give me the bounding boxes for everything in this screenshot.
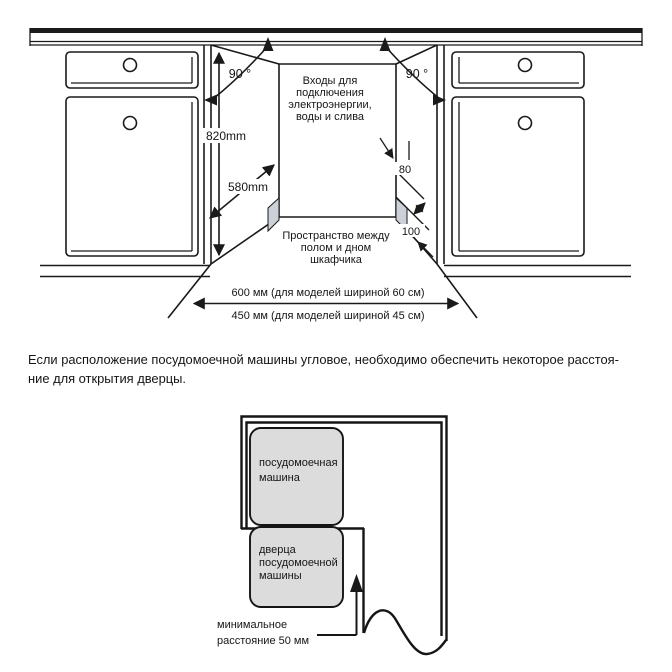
left-drawer-knob-icon (124, 59, 137, 72)
label-angle-left: 90 ° (229, 67, 251, 81)
svg-text:электроэнергии,: электроэнергии, (288, 99, 371, 111)
note-line-1: Если расположение посудомоечной машины у… (28, 350, 664, 369)
svg-text:подключения: подключения (296, 87, 364, 99)
svg-text:полом и дном: полом и дном (301, 242, 372, 254)
left-plinth-panel (268, 198, 279, 231)
gap-80-arrow-icon (414, 203, 425, 214)
left-cabinet (40, 45, 211, 277)
svg-text:машина: машина (259, 472, 301, 484)
right-baseboard-lines (444, 266, 631, 277)
arrow-up-icon (380, 37, 391, 51)
leader-arrow-icon (380, 138, 393, 158)
svg-text:расстояние 50 мм: расстояние 50 мм (217, 635, 309, 647)
width-dimension: 600 мм (для моделей шириной 60 см) 450 м… (194, 287, 458, 322)
right-door-front (452, 97, 584, 256)
gap-100-arrow-icon (418, 242, 430, 254)
depth-dimension-580: 580mm (210, 165, 276, 218)
wavy-break-line (364, 610, 446, 654)
svg-text:воды и слива: воды и слива (296, 111, 365, 123)
niche-diagram: 80 100 90 ° 90 ° Входы для подключения э… (30, 28, 642, 322)
left-door-front (66, 97, 198, 256)
svg-text:посудомоечной: посудомоечной (259, 557, 338, 569)
inlets-label: Входы для подключения электроэнергии, во… (288, 75, 371, 123)
left-baseboard-lines (40, 266, 210, 277)
right-drawer-knob-icon (519, 59, 532, 72)
svg-text:Пространство между: Пространство между (282, 230, 390, 242)
label-450mm: 450 мм (для моделей шириной 45 см) (231, 310, 424, 322)
corner-diagram: посудомоечная машина дверца посудомоечно… (217, 417, 447, 655)
right-door-knob-icon (519, 117, 532, 130)
min-distance-label: минимальное (217, 619, 287, 631)
note-line-2: ние для открытия дверцы. (28, 369, 664, 388)
label-80: 80 (399, 164, 411, 176)
label-820mm: 820mm (206, 129, 246, 143)
dishwasher-label: посудомоечная (259, 457, 338, 469)
label-angle-right: 90 ° (406, 67, 428, 81)
svg-text:Входы для: Входы для (303, 75, 358, 87)
svg-text:шкафчика: шкафчика (310, 254, 363, 266)
label-100: 100 (402, 226, 420, 238)
right-cabinet (437, 45, 631, 277)
countertop-lines (30, 28, 642, 46)
left-door-knob-icon (124, 117, 137, 130)
arrow-up-icon (263, 37, 274, 51)
label-580mm: 580mm (228, 180, 268, 194)
note-paragraph: Если расположение посудомоечной машины у… (28, 350, 664, 388)
label-600mm: 600 мм (для моделей шириной 60 см) (231, 287, 424, 299)
diagrams-svg: 80 100 90 ° 90 ° Входы для подключения э… (0, 0, 672, 672)
manual-page: 80 100 90 ° 90 ° Входы для подключения э… (0, 0, 672, 672)
door-label: дверца (259, 544, 297, 556)
arrow-up-icon (350, 574, 363, 592)
floor-space-label: Пространство между полом и дном шкафчика (282, 230, 390, 266)
svg-text:машины: машины (259, 570, 302, 582)
